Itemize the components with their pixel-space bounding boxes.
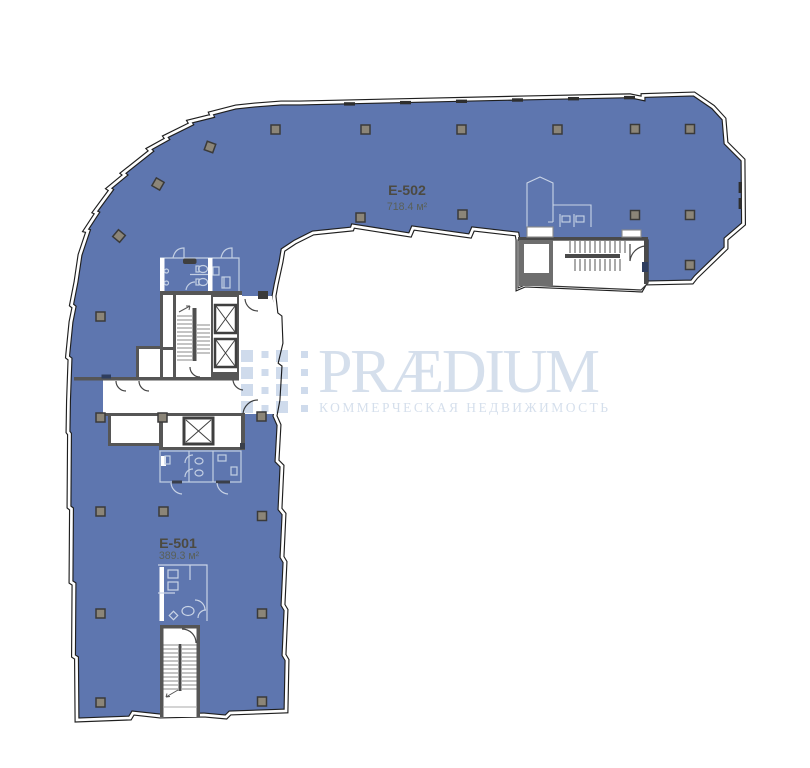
- svg-text:389.3 м²: 389.3 м²: [159, 550, 200, 562]
- svg-text:PRÆDIUM: PRÆDIUM: [318, 338, 600, 406]
- svg-text:КОММЕРЧЕСКАЯ НЕДВИЖИМОСТЬ: КОММЕРЧЕСКАЯ НЕДВИЖИМОСТЬ: [319, 400, 608, 415]
- svg-text:E-502: E-502: [388, 183, 426, 199]
- svg-text:718.4 м²: 718.4 м²: [387, 201, 428, 213]
